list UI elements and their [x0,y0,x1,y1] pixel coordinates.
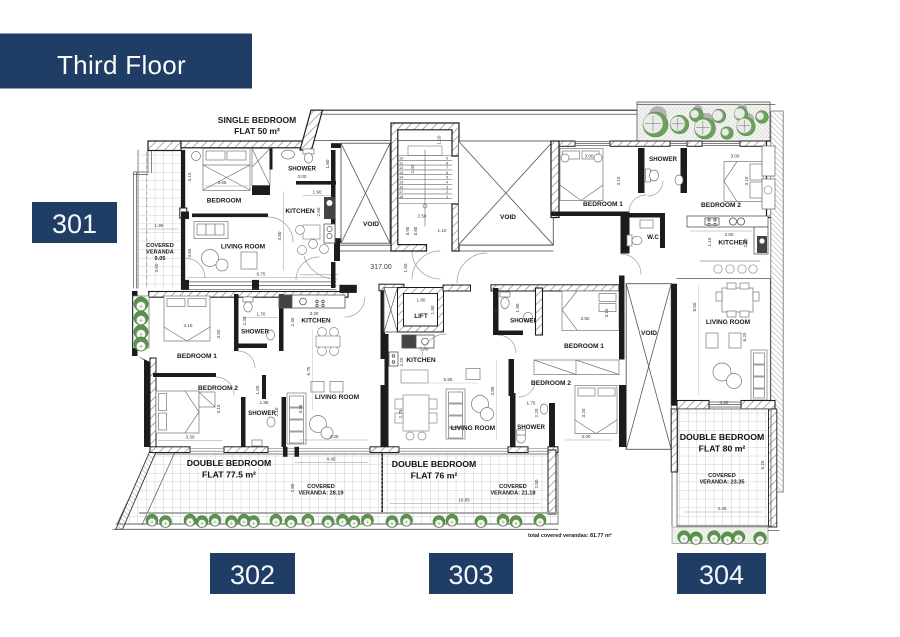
svg-text:3.50: 3.50 [581,316,590,321]
svg-text:COVERED: COVERED [499,484,527,490]
svg-text:301: 301 [52,209,97,239]
svg-text:3.25: 3.25 [298,404,303,413]
svg-text:0.80: 0.80 [413,226,418,235]
svg-text:1.10: 1.10 [438,228,447,233]
svg-text:LIVING ROOM: LIVING ROOM [221,244,266,251]
svg-text:1.80: 1.80 [430,305,435,314]
svg-text:BEDROOM 2: BEDROOM 2 [198,385,238,392]
svg-text:2.75: 2.75 [398,409,403,418]
svg-text:4.80: 4.80 [277,231,282,240]
svg-text:2.10: 2.10 [274,407,279,416]
svg-text:2.50: 2.50 [316,207,321,216]
svg-text:0.90: 0.90 [405,226,410,235]
svg-text:BEDROOM 2: BEDROOM 2 [701,202,741,209]
svg-text:3.10: 3.10 [216,404,221,413]
svg-text:3.50: 3.50 [216,329,221,338]
svg-text:303: 303 [448,560,493,590]
svg-text:KITCHEN: KITCHEN [406,357,436,364]
svg-text:COVERED: COVERED [146,243,174,249]
svg-text:3.05: 3.05 [218,180,227,185]
svg-text:18: 18 [399,194,403,199]
svg-text:2.50: 2.50 [743,238,748,247]
svg-text:3.50: 3.50 [154,263,159,272]
svg-text:3.20: 3.20 [581,408,586,417]
svg-text:1.90: 1.90 [313,190,322,195]
svg-text:KITCHEN: KITCHEN [301,318,331,325]
svg-text:FLAT 77.5 m²: FLAT 77.5 m² [202,470,256,480]
svg-text:4.20: 4.20 [720,400,729,405]
svg-text:2.80: 2.80 [290,483,295,492]
svg-text:1.20: 1.20 [437,135,442,144]
svg-text:3.20: 3.20 [310,311,319,316]
svg-text:SHOWER: SHOWER [649,156,677,163]
svg-text:VOID: VOID [641,330,657,337]
svg-text:LIVING ROOM: LIVING ROOM [451,425,496,432]
svg-text:2.05: 2.05 [493,308,498,317]
svg-text:1.75: 1.75 [527,401,536,406]
svg-text:1.85: 1.85 [260,400,269,405]
svg-text:8.50: 8.50 [692,302,697,311]
svg-text:BEDROOM 2: BEDROOM 2 [531,380,571,387]
svg-text:VOID: VOID [363,221,379,228]
svg-text:3.00: 3.00 [731,154,740,159]
svg-text:1.90: 1.90 [515,303,520,312]
svg-text:LIFT: LIFT [414,313,428,320]
svg-text:4.25: 4.25 [330,434,339,439]
svg-text:2.20: 2.20 [534,408,539,417]
svg-text:3.10: 3.10 [616,176,621,185]
svg-text:3.30: 3.30 [186,435,195,440]
svg-text:6.75: 6.75 [257,272,266,277]
svg-text:SHOWER: SHOWER [288,166,316,173]
svg-text:9.05: 9.05 [155,256,166,262]
svg-text:total covered verandas: 81.77: total covered verandas: 81.77 m² [528,533,612,539]
svg-text:6.20: 6.20 [742,332,747,341]
svg-text:SHOWER: SHOWER [248,410,276,417]
svg-text:VERANDA: 21.18: VERANDA: 21.18 [490,491,535,497]
svg-text:VERANDA: 28.19: VERANDA: 28.19 [298,491,343,497]
svg-text:2.20: 2.20 [399,357,404,366]
svg-text:1.99: 1.99 [155,223,164,228]
svg-text:SHOWER: SHOWER [510,318,538,325]
svg-text:4.85: 4.85 [490,386,495,395]
svg-text:BEDROOM 1: BEDROOM 1 [564,343,604,350]
svg-text:1.00: 1.00 [255,385,260,394]
svg-text:Third Floor: Third Floor [57,50,186,80]
svg-text:DOUBLE BEDROOM: DOUBLE BEDROOM [392,459,476,469]
svg-text:1.10: 1.10 [707,237,712,246]
svg-text:3.10: 3.10 [744,176,749,185]
svg-text:3.50: 3.50 [187,248,192,257]
svg-text:COVERED: COVERED [307,484,335,490]
svg-text:2.80: 2.80 [534,479,539,488]
svg-text:317.00: 317.00 [370,264,392,271]
svg-text:BEDROOM: BEDROOM [207,198,242,205]
svg-text:3.10: 3.10 [604,308,609,317]
svg-text:3.10: 3.10 [187,172,192,181]
svg-text:W.C: W.C [647,234,659,241]
svg-text:5.55: 5.55 [444,377,453,382]
svg-text:FLAT 80 m²: FLAT 80 m² [699,444,746,454]
svg-text:6.75: 6.75 [306,366,311,375]
svg-text:2.30: 2.30 [242,316,247,325]
svg-text:3.10: 3.10 [184,323,193,328]
svg-text:304: 304 [699,560,744,590]
svg-text:1.70: 1.70 [257,312,266,317]
svg-text:4.45: 4.45 [327,457,336,462]
svg-text:3.60: 3.60 [725,232,734,237]
svg-text:4.45: 4.45 [718,506,727,511]
svg-text:10.85: 10.85 [458,498,470,503]
svg-text:FLAT 50 m²: FLAT 50 m² [234,126,280,136]
svg-text:DOUBLE BEDROOM: DOUBLE BEDROOM [187,458,271,468]
svg-text:VERANDA: VERANDA [146,250,174,256]
svg-text:1.80: 1.80 [417,298,426,303]
svg-text:SHOWER: SHOWER [517,424,545,431]
svg-text:FLAT 76 m²: FLAT 76 m² [411,471,458,481]
svg-text:COVERED: COVERED [708,473,736,479]
svg-text:3.00: 3.00 [582,434,591,439]
svg-text:VERANDA: 23.35: VERANDA: 23.35 [699,480,744,486]
svg-text:LIVING ROOM: LIVING ROOM [706,319,751,326]
svg-text:LIVING ROOM: LIVING ROOM [315,394,360,401]
svg-text:2.50: 2.50 [418,214,427,219]
svg-text:BEDROOM 1: BEDROOM 1 [177,353,217,360]
svg-text:3.00: 3.00 [585,154,594,159]
svg-text:2.44: 2.44 [410,164,415,173]
svg-text:DOUBLE BEDROOM: DOUBLE BEDROOM [680,432,764,442]
svg-text:3.00: 3.00 [298,174,307,179]
svg-text:1.50: 1.50 [403,263,408,272]
svg-text:SINGLE BEDROOM: SINGLE BEDROOM [218,115,296,125]
svg-text:2.30: 2.30 [290,317,295,326]
svg-text:5.25: 5.25 [760,460,765,469]
svg-text:BEDROOM 1: BEDROOM 1 [583,201,623,208]
svg-text:1.60: 1.60 [325,159,330,168]
svg-text:KITCHEN: KITCHEN [285,208,315,215]
svg-text:302: 302 [230,560,275,590]
svg-text:1: 1 [446,194,448,199]
svg-text:VOID: VOID [500,214,516,221]
svg-text:SHOWER: SHOWER [241,329,269,336]
